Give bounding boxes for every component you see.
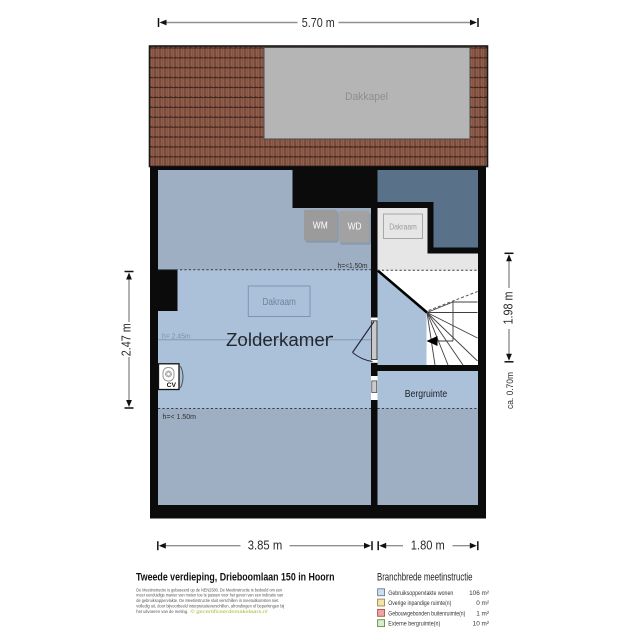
svg-text:Tweede verdieping, Drieboomlaa: Tweede verdieping, Drieboomlaan 150 in H… (136, 572, 335, 584)
svg-text:WM: WM (313, 220, 328, 232)
svg-text:1.98 m: 1.98 m (502, 292, 516, 325)
svg-text:10 m²: 10 m² (473, 621, 489, 628)
svg-text:3.85 m: 3.85 m (248, 539, 283, 553)
svg-text:volledig uit, door bijvoorbeel: volledig uit, door bijvoorbeeld interpre… (136, 604, 284, 610)
svg-text:de gebruiksoppervlakte. De Mee: de gebruiksoppervlakte. De Meetinstructi… (136, 598, 279, 604)
svg-text:Zolderkamer: Zolderkamer (226, 329, 331, 350)
svg-text:meer eenduidige manier van met: meer eenduidige manier van meten toe te … (136, 593, 283, 599)
svg-text:Bergruimte: Bergruimte (405, 388, 448, 400)
svg-text:h= 2.45m: h= 2.45m (162, 331, 191, 340)
svg-text:WD: WD (348, 220, 362, 232)
svg-text:het uitvoeren van de meting.: het uitvoeren van de meting. (136, 609, 188, 615)
svg-text:5.70 m: 5.70 m (302, 15, 335, 30)
svg-text:ca. 0.70m: ca. 0.70m (505, 372, 515, 409)
svg-text:h=< 1.50m: h=< 1.50m (163, 412, 197, 421)
svg-text:2.47 m: 2.47 m (120, 323, 134, 356)
svg-text:Dakraam: Dakraam (389, 223, 417, 232)
svg-text:Dakraam: Dakraam (262, 296, 296, 308)
svg-text:0 m²: 0 m² (476, 600, 489, 607)
svg-text:Overige inpandige ruimte(n): Overige inpandige ruimte(n) (388, 600, 451, 607)
svg-text:h=<1.50m: h=<1.50m (338, 261, 368, 270)
svg-text:Gebouwgebonden buitenruimte(n): Gebouwgebonden buitenruimte(n) (388, 610, 465, 617)
svg-text:1.80 m: 1.80 m (411, 539, 445, 553)
svg-text:De Meetinstructie is gebaseerd: De Meetinstructie is gebaseerd op de NEN… (136, 587, 282, 593)
svg-text:CV: CV (167, 382, 177, 389)
svg-text:106 m²: 106 m² (469, 590, 489, 597)
svg-text:Externe bergruimte(n): Externe bergruimte(n) (388, 621, 440, 628)
svg-text:© gecertificeerdemakelaars.nl: © gecertificeerdemakelaars.nl (191, 608, 268, 615)
svg-text:1 m²: 1 m² (476, 610, 489, 617)
svg-text:Branchbrede meetinstructie: Branchbrede meetinstructie (377, 572, 473, 584)
svg-text:Gebruiksoppervlakte wonen: Gebruiksoppervlakte wonen (388, 590, 453, 597)
svg-text:Dakkapel: Dakkapel (345, 91, 388, 103)
